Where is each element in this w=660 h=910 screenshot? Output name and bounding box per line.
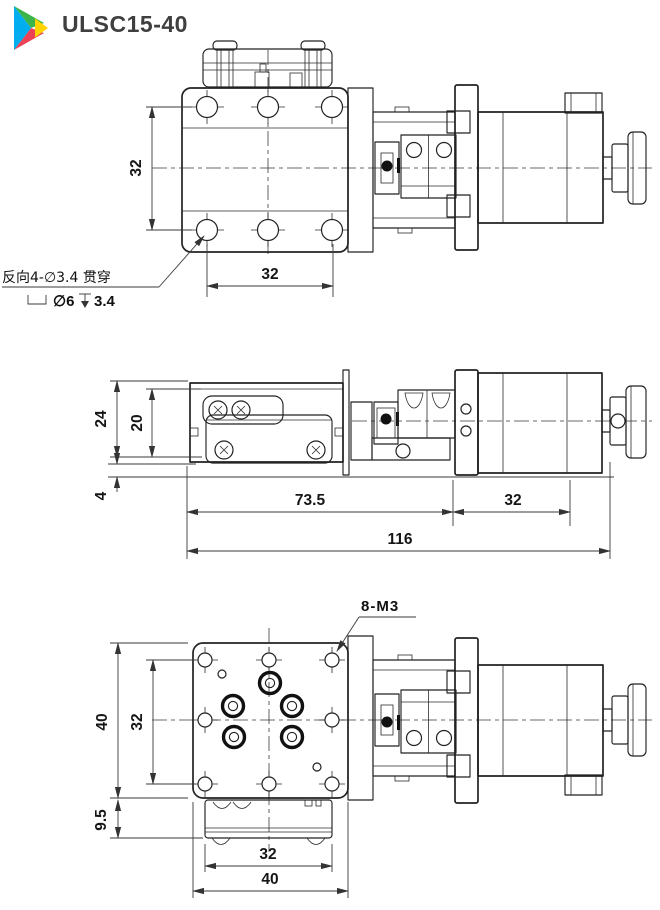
- logo: [14, 6, 48, 50]
- svg-text:4: 4: [93, 491, 110, 500]
- bottom-connector-block: [205, 800, 332, 845]
- table-plate: [192, 643, 348, 798]
- svg-text:32: 32: [259, 846, 276, 863]
- top-connector-block: [203, 41, 332, 87]
- note-counterbore-dia: ∅6: [53, 293, 74, 310]
- counterbore-holes: [223, 673, 303, 748]
- svg-text:20: 20: [129, 414, 146, 431]
- svg-text:24: 24: [93, 410, 110, 428]
- dim-hole-cols-32: 32: [205, 844, 332, 872]
- svg-text:73.5: 73.5: [295, 492, 326, 509]
- stage-body-side: [190, 383, 343, 463]
- dim-motor-length-32: 32: [453, 480, 570, 526]
- svg-text:40: 40: [94, 713, 111, 730]
- dim-connector-depth-9-5: 9.5: [93, 800, 203, 838]
- dim-hole-rows-32: 32: [129, 660, 196, 784]
- svg-text:32: 32: [128, 159, 145, 176]
- clamp-block: [398, 390, 455, 438]
- page-title: ULSC15-40: [62, 11, 188, 37]
- dim-base-height-4: 4: [93, 450, 614, 500]
- note-line1: 反向4-∅3.4 贯穿: [2, 270, 111, 286]
- stage-plate: [182, 88, 349, 252]
- motor-body: [478, 373, 602, 473]
- logo-yellow-segment: [35, 19, 48, 38]
- bottom-view: 8-M3 40 32 9.5 32: [93, 598, 652, 898]
- svg-text:32: 32: [129, 713, 146, 730]
- motor-flange: [455, 370, 478, 475]
- svg-text:40: 40: [261, 871, 278, 888]
- svg-text:116: 116: [387, 531, 412, 548]
- counterbore-icon: [28, 295, 46, 304]
- svg-text:9.5: 9.5: [93, 809, 110, 831]
- svg-text:32: 32: [261, 266, 278, 283]
- set-screw: [381, 414, 392, 425]
- drawing-page: ULSC15-40: [0, 0, 660, 910]
- depth-icon: [79, 294, 91, 308]
- manual-knob: [626, 386, 646, 458]
- motor-assembly-bottom-view: [348, 636, 646, 803]
- top-view: 32 32 反向4-∅3.4 贯穿 ∅6 3.4: [2, 41, 652, 310]
- dim-stage-length-73-5: 73.5: [187, 466, 453, 559]
- dim-overall-height-24: 24: [93, 381, 202, 457]
- counterbore-note: 反向4-∅3.4 贯穿 ∅6 3.4: [2, 236, 204, 310]
- side-view: 24 20 4 73.5 32 116: [93, 370, 652, 559]
- note-counterbore-depth: 3.4: [94, 293, 116, 310]
- motor-assembly-side-view: [343, 370, 646, 475]
- thread-callout: 8-M3: [337, 598, 416, 651]
- technical-drawing: ULSC15-40: [0, 0, 660, 910]
- thread-label: 8-M3: [361, 598, 399, 615]
- motor-assembly-top-view: [348, 85, 646, 252]
- svg-text:32: 32: [504, 492, 521, 509]
